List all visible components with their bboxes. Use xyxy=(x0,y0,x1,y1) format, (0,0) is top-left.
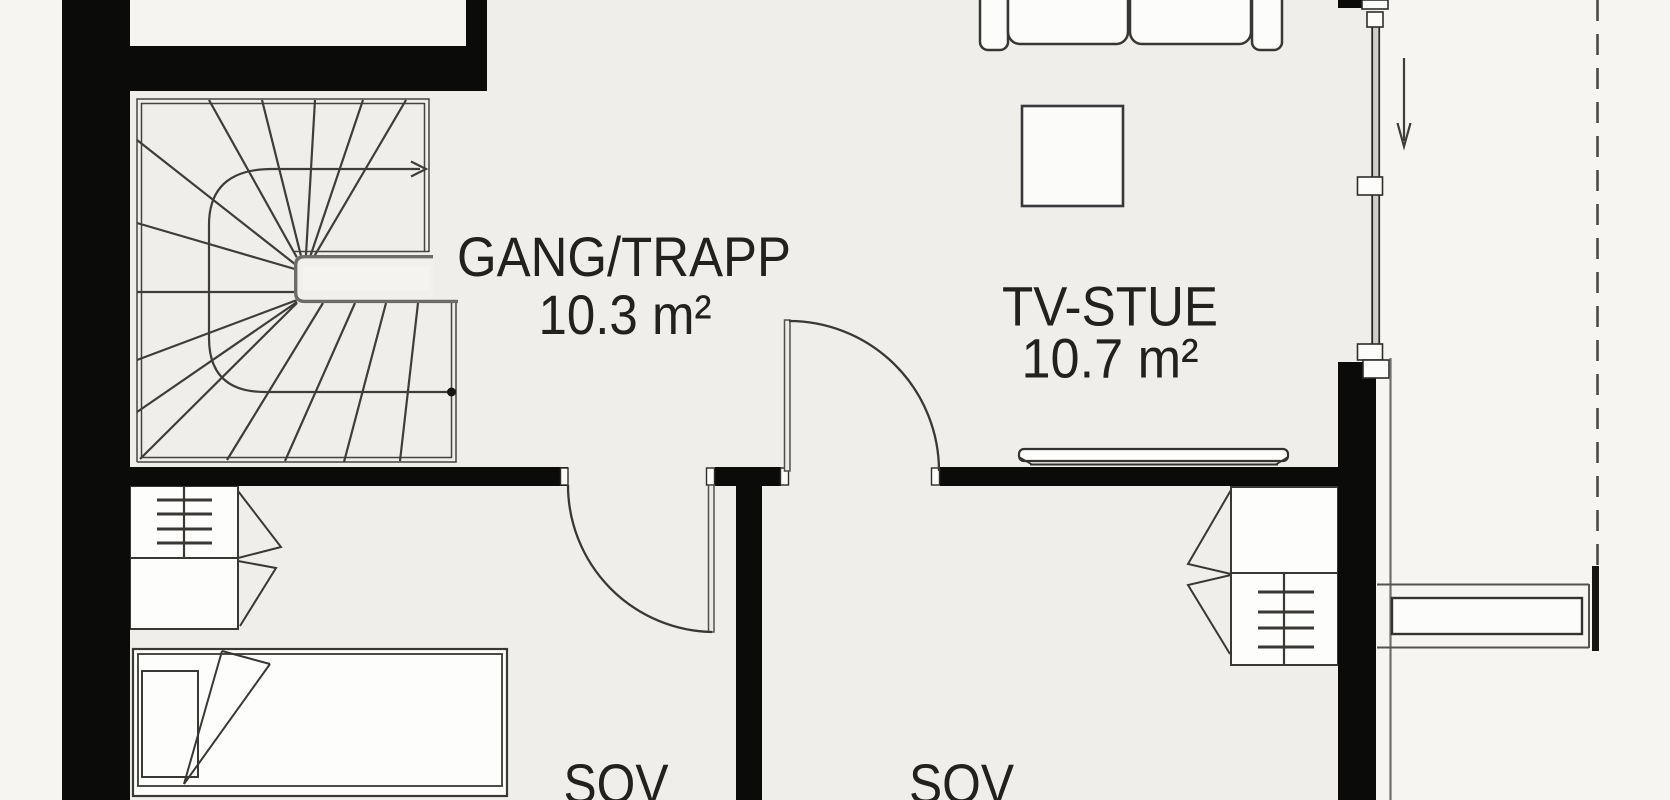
svg-text:10.3 m²: 10.3 m² xyxy=(539,283,712,346)
svg-text:GANG/TRAPP: GANG/TRAPP xyxy=(457,225,791,288)
svg-text:SOV: SOV xyxy=(564,752,670,800)
svg-text:SOV: SOV xyxy=(909,752,1015,800)
svg-text:10.7 m²: 10.7 m² xyxy=(1022,327,1199,390)
